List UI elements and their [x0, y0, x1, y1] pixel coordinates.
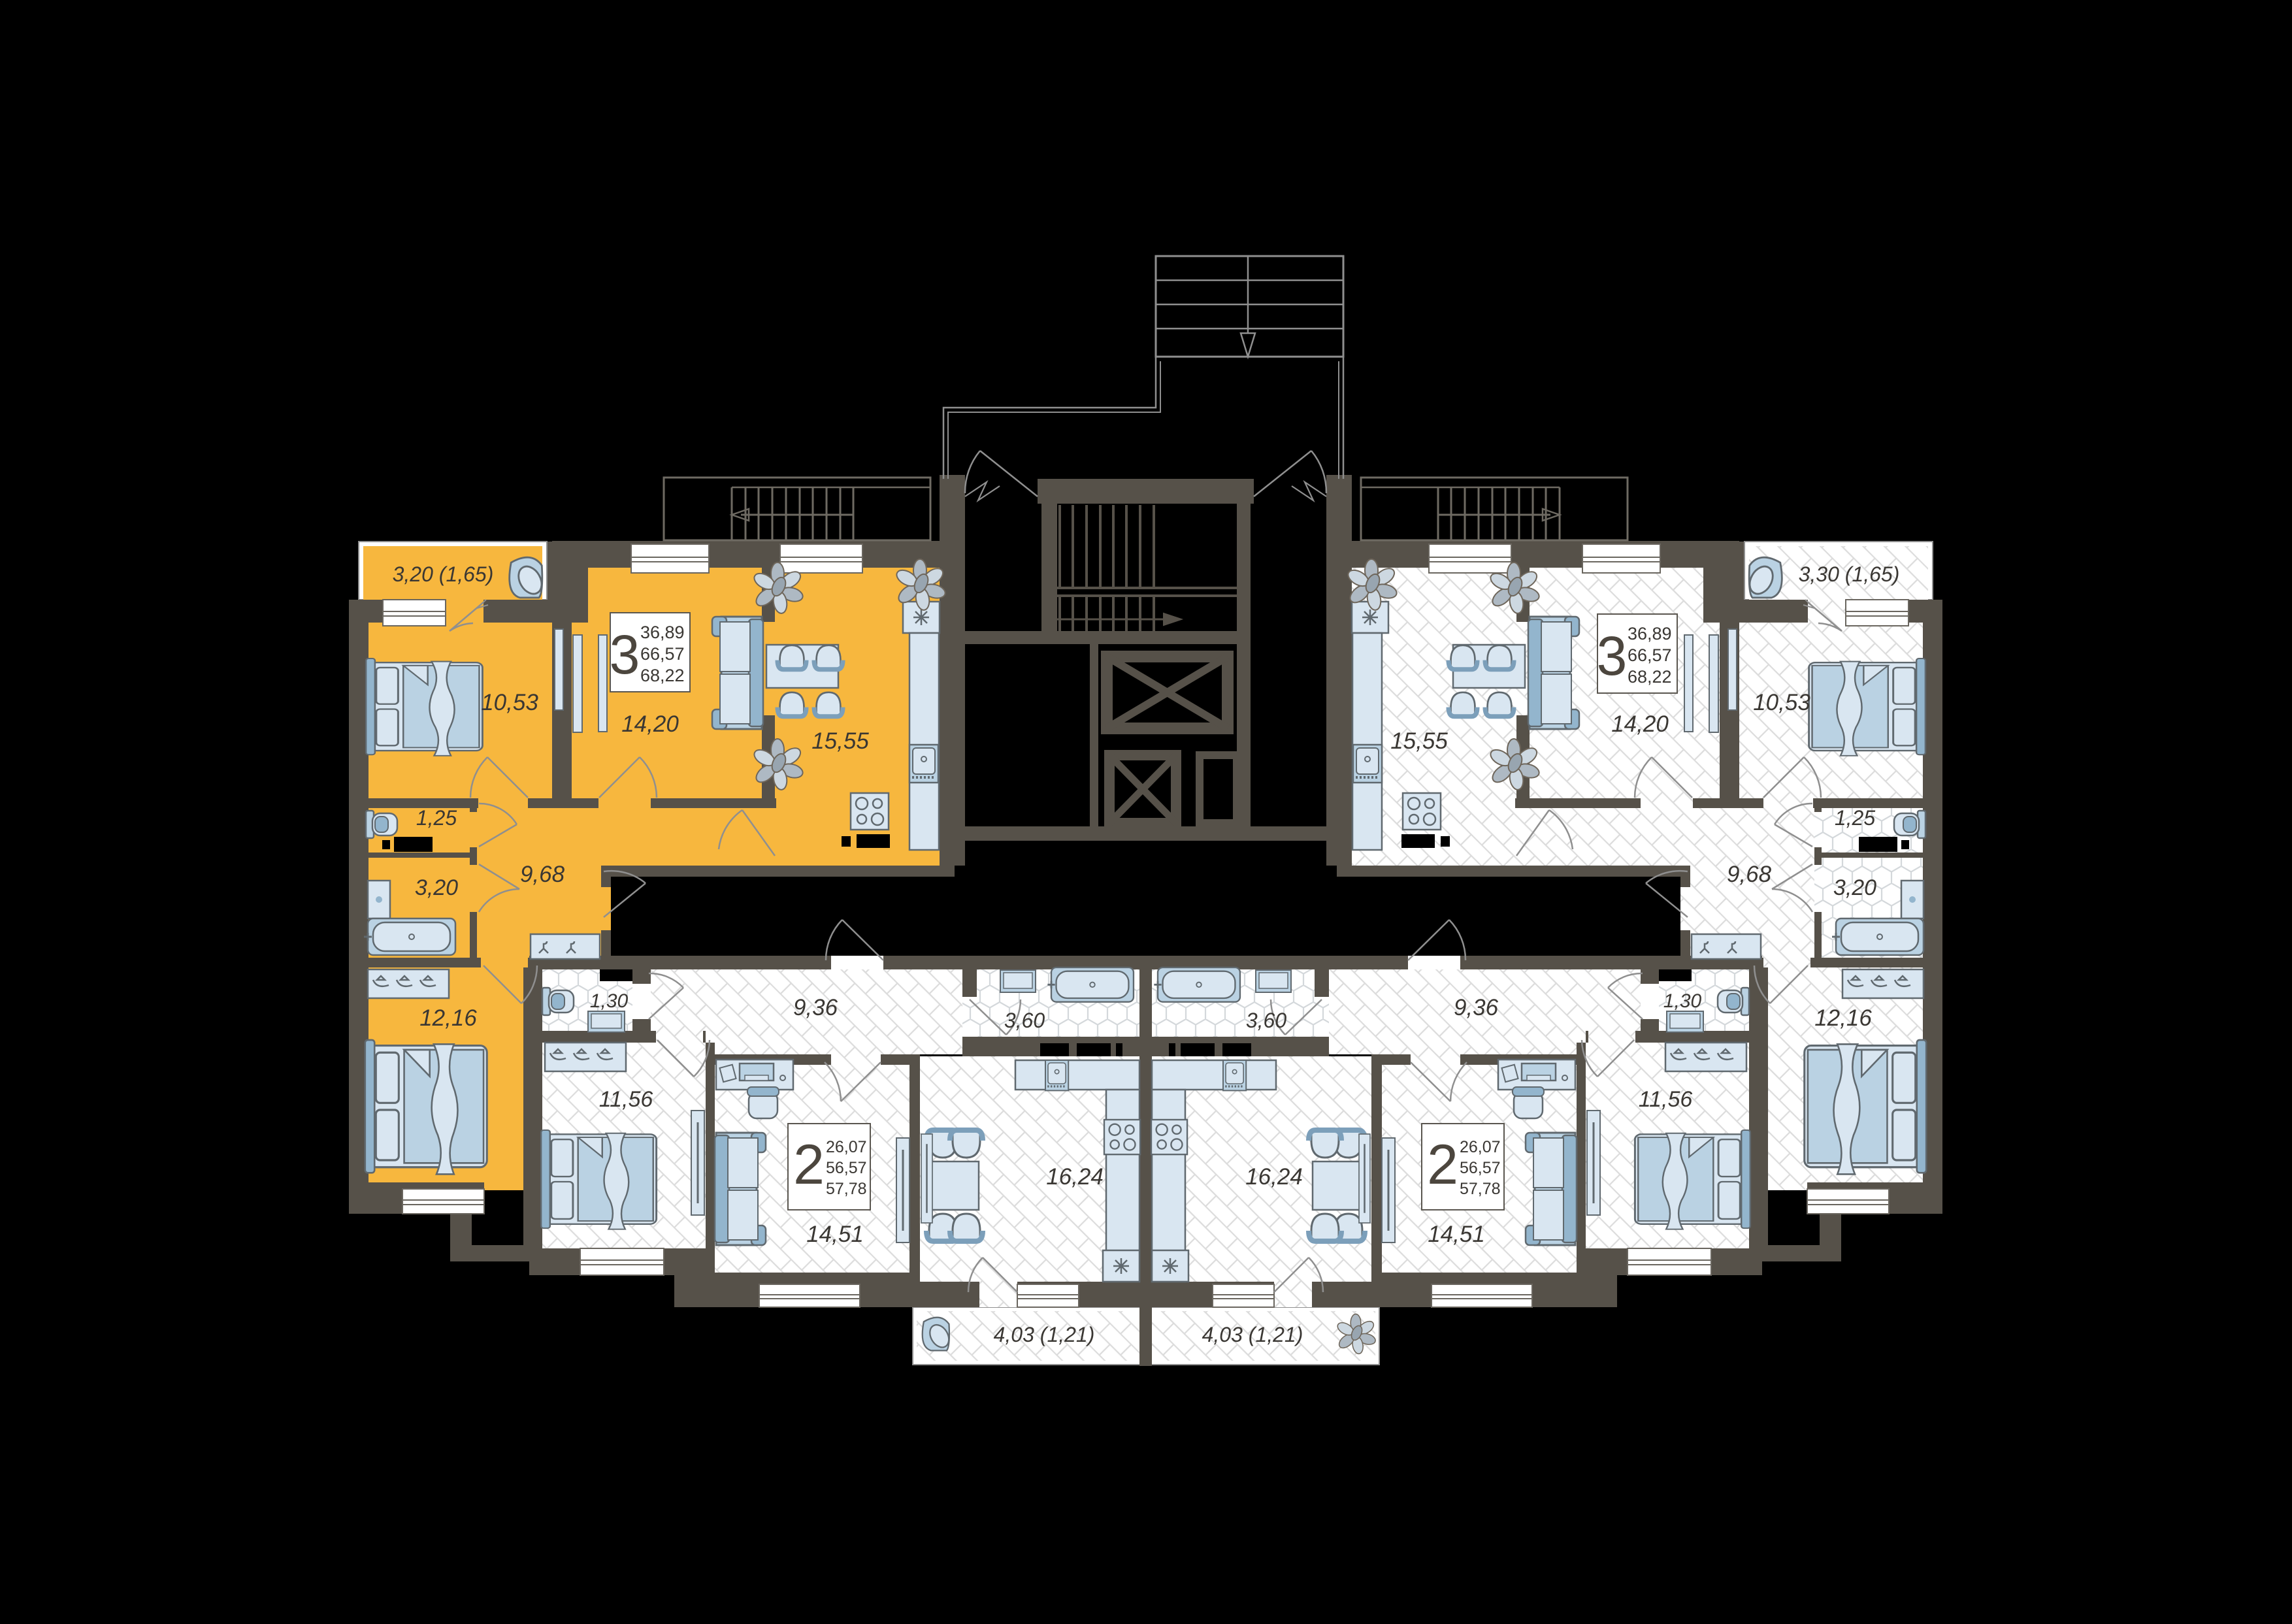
svg-text:36,89: 36,89 [640, 623, 685, 642]
svg-text:9,68: 9,68 [1727, 862, 1772, 887]
svg-text:56,57: 56,57 [826, 1159, 867, 1177]
svg-text:3,20: 3,20 [415, 875, 458, 900]
svg-text:1,25: 1,25 [1835, 806, 1875, 830]
svg-text:57,78: 57,78 [1460, 1180, 1501, 1198]
svg-text:57,78: 57,78 [826, 1180, 867, 1198]
svg-text:14,20: 14,20 [1611, 711, 1669, 737]
svg-text:10,53: 10,53 [481, 690, 538, 715]
svg-text:4,03 (1,21): 4,03 (1,21) [994, 1323, 1095, 1346]
svg-text:9,68: 9,68 [520, 862, 565, 887]
svg-text:14,51: 14,51 [806, 1222, 864, 1247]
svg-text:12,16: 12,16 [419, 1005, 477, 1031]
svg-text:3,20: 3,20 [1833, 875, 1876, 900]
svg-text:14,51: 14,51 [1428, 1222, 1485, 1247]
svg-text:3,30 (1,65): 3,30 (1,65) [1799, 562, 1900, 586]
svg-text:2: 2 [1427, 1133, 1458, 1196]
svg-text:3: 3 [610, 624, 640, 685]
svg-text:1,30: 1,30 [590, 990, 629, 1012]
svg-text:4,03 (1,21): 4,03 (1,21) [1202, 1323, 1303, 1346]
svg-text:9,36: 9,36 [793, 995, 838, 1020]
svg-text:3,60: 3,60 [1004, 1009, 1045, 1032]
svg-text:26,07: 26,07 [1460, 1138, 1501, 1156]
svg-text:12,16: 12,16 [1814, 1005, 1872, 1031]
svg-text:11,56: 11,56 [599, 1087, 653, 1112]
svg-text:3,20 (1,65): 3,20 (1,65) [393, 562, 494, 586]
svg-text:9,36: 9,36 [1454, 995, 1499, 1020]
svg-text:1,30: 1,30 [1663, 990, 1702, 1012]
svg-text:15,55: 15,55 [811, 728, 869, 754]
svg-text:11,56: 11,56 [1639, 1087, 1693, 1112]
svg-text:3,60: 3,60 [1246, 1009, 1286, 1032]
svg-text:3: 3 [1597, 625, 1628, 687]
svg-text:36,89: 36,89 [1628, 624, 1672, 643]
svg-text:1,25: 1,25 [416, 806, 457, 830]
svg-text:66,57: 66,57 [640, 644, 685, 664]
svg-text:10,53: 10,53 [1753, 690, 1810, 715]
svg-text:15,55: 15,55 [1390, 728, 1448, 754]
svg-text:16,24: 16,24 [1046, 1164, 1104, 1190]
svg-text:16,24: 16,24 [1245, 1164, 1303, 1190]
svg-text:68,22: 68,22 [640, 666, 685, 685]
svg-text:68,22: 68,22 [1628, 667, 1672, 687]
svg-text:66,57: 66,57 [1628, 645, 1672, 665]
svg-text:2: 2 [793, 1133, 825, 1196]
svg-text:56,57: 56,57 [1460, 1159, 1501, 1177]
svg-text:26,07: 26,07 [826, 1138, 867, 1156]
svg-text:14,20: 14,20 [621, 711, 679, 737]
